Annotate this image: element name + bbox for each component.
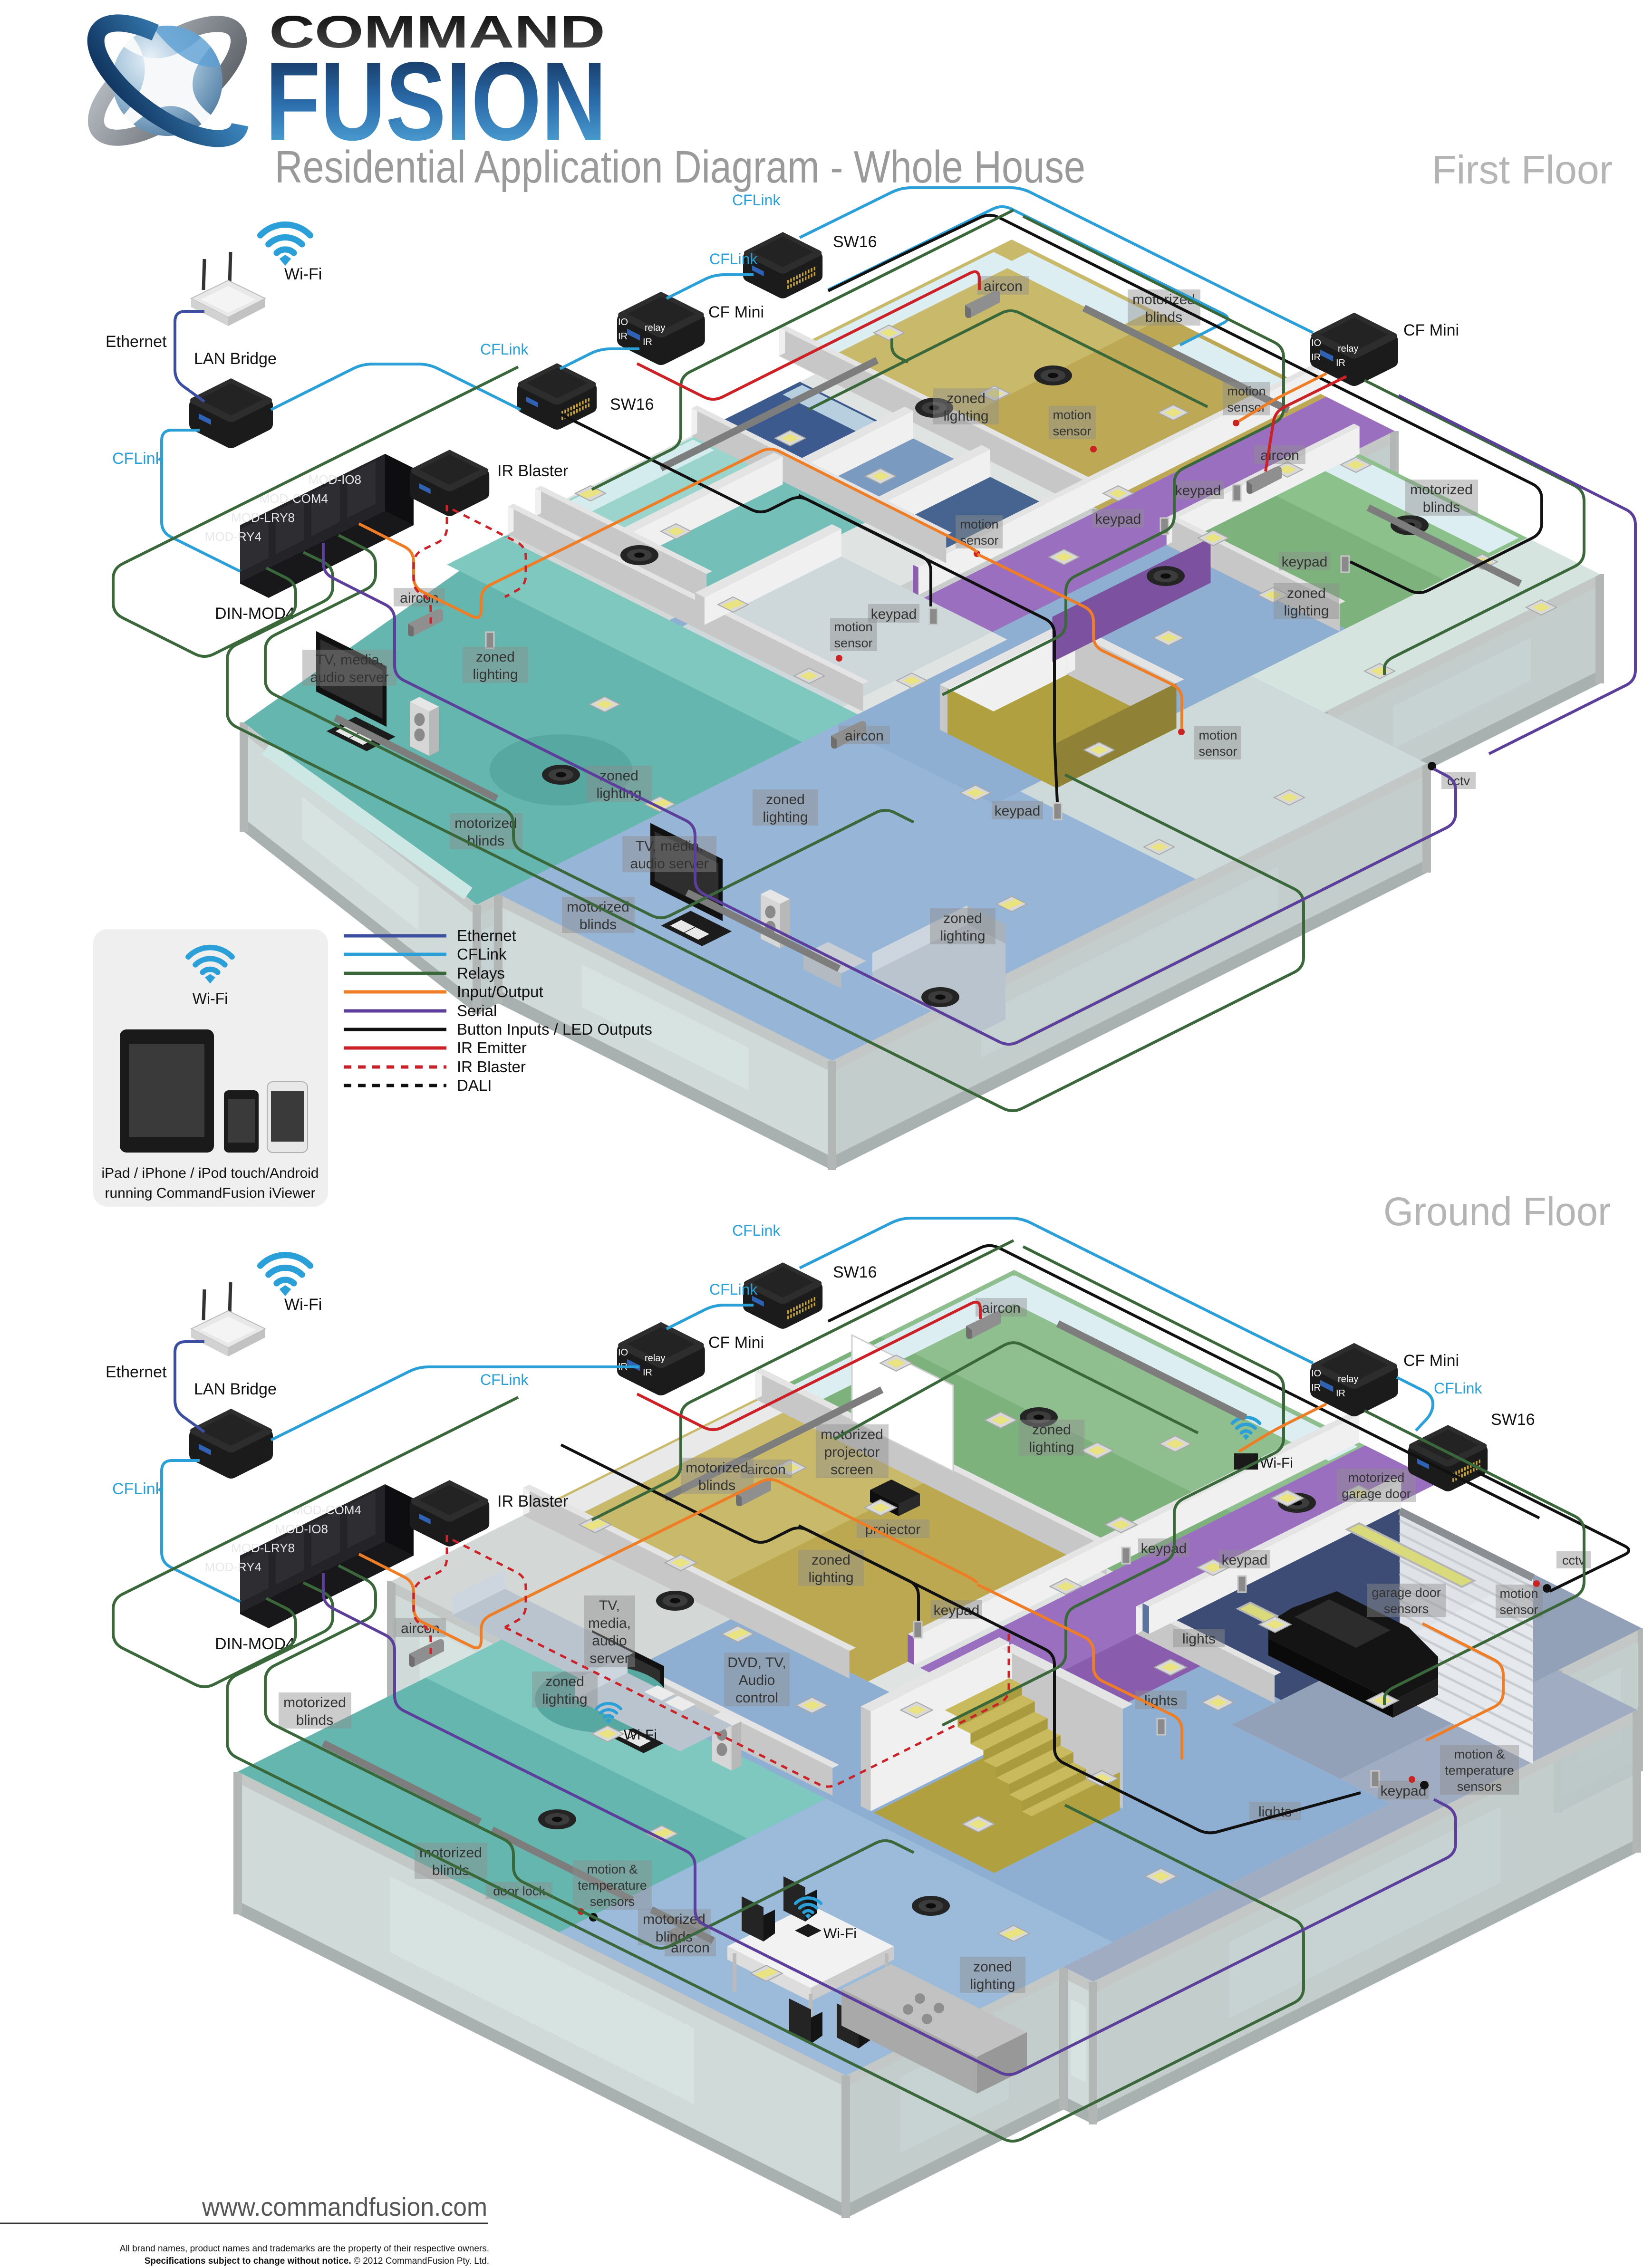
svg-text:motion: motion	[1499, 1586, 1538, 1601]
svg-text:DVD, TV,: DVD, TV,	[727, 1655, 786, 1671]
svg-text:lights: lights	[1182, 1631, 1216, 1647]
svg-text:blinds: blinds	[698, 1478, 735, 1493]
svg-text:MOD-IO8: MOD-IO8	[275, 1522, 328, 1536]
svg-text:CF Mini: CF Mini	[708, 303, 764, 321]
svg-text:TV, media,: TV, media,	[316, 652, 383, 668]
svg-text:CFLink: CFLink	[732, 192, 781, 209]
svg-text:garage door: garage door	[1372, 1586, 1441, 1600]
svg-text:CFLink: CFLink	[457, 945, 507, 963]
svg-text:Relays: Relays	[457, 964, 505, 982]
svg-text:sensor: sensor	[1198, 744, 1237, 759]
svg-text:TV,: TV,	[599, 1598, 620, 1614]
svg-text:CF Mini: CF Mini	[1403, 321, 1459, 339]
svg-text:blinds: blinds	[467, 833, 504, 849]
svg-text:relay: relay	[1338, 344, 1358, 354]
svg-text:CFLink: CFLink	[709, 1281, 758, 1298]
svg-text:IR: IR	[1311, 352, 1321, 363]
svg-text:keypad: keypad	[1381, 1783, 1427, 1799]
svg-text:zoned: zoned	[1287, 586, 1326, 601]
svg-text:audio server: audio server	[630, 856, 708, 872]
svg-text:cctv: cctv	[1447, 774, 1470, 788]
svg-text:keypad: keypad	[1175, 483, 1221, 499]
svg-text:CFLink: CFLink	[1434, 1380, 1482, 1397]
svg-text:CFLink: CFLink	[732, 1222, 781, 1239]
svg-text:zoned: zoned	[476, 649, 515, 665]
svg-text:IO: IO	[1311, 338, 1321, 348]
svg-text:IR: IR	[1311, 1383, 1321, 1393]
svg-text:IO: IO	[618, 1347, 628, 1358]
svg-text:IR: IR	[643, 1367, 652, 1378]
svg-text:All brand names, product names: All brand names, product names and trade…	[120, 2244, 489, 2254]
svg-text:Audio: Audio	[739, 1672, 775, 1688]
svg-text:lighting: lighting	[808, 1570, 853, 1586]
svg-text:DALI: DALI	[457, 1076, 492, 1094]
svg-text:Ethernet: Ethernet	[106, 1363, 167, 1381]
svg-text:motion: motion	[1198, 728, 1237, 742]
svg-text:CFLink: CFLink	[480, 341, 529, 358]
svg-text:aircon: aircon	[982, 1300, 1021, 1316]
svg-text:Button Inputs / LED Outputs: Button Inputs / LED Outputs	[457, 1020, 652, 1038]
svg-text:sensors: sensors	[1384, 1602, 1429, 1616]
svg-text:zoned: zoned	[545, 1674, 584, 1690]
svg-text:LAN Bridge: LAN Bridge	[194, 1380, 277, 1398]
svg-text:relay: relay	[645, 1353, 665, 1364]
svg-text:www.commandfusion.com: www.commandfusion.com	[202, 2193, 487, 2221]
svg-text:motorized: motorized	[454, 816, 517, 831]
svg-text:zoned: zoned	[947, 391, 986, 406]
svg-text:temperature: temperature	[1445, 1763, 1514, 1778]
svg-text:sensor: sensor	[1053, 424, 1091, 438]
svg-text:Serial: Serial	[457, 1002, 497, 1019]
svg-text:IR: IR	[1336, 1388, 1345, 1399]
svg-text:blinds: blinds	[1423, 500, 1460, 515]
svg-text:relay: relay	[1338, 1374, 1358, 1384]
svg-text:MOD-IO8: MOD-IO8	[309, 472, 361, 487]
svg-text:temperature: temperature	[578, 1878, 647, 1893]
svg-text:keypad: keypad	[1095, 511, 1141, 527]
svg-text:Wi-Fi: Wi-Fi	[624, 1727, 657, 1743]
svg-text:First Floor: First Floor	[1432, 147, 1613, 192]
svg-text:Residential Application Diagra: Residential Application Diagram - Whole …	[275, 142, 1085, 192]
svg-text:relay: relay	[645, 323, 665, 333]
svg-text:motorized: motorized	[686, 1460, 748, 1476]
svg-text:motion &: motion &	[587, 1862, 638, 1876]
svg-text:motorized: motorized	[1410, 482, 1473, 498]
svg-text:zoned: zoned	[1032, 1422, 1071, 1438]
svg-text:CFLink: CFLink	[480, 1371, 529, 1388]
svg-text:CFLink: CFLink	[112, 450, 164, 468]
svg-text:SW16: SW16	[1491, 1411, 1535, 1429]
svg-text:IR: IR	[1336, 358, 1345, 368]
svg-text:zoned: zoned	[812, 1552, 850, 1568]
svg-text:MOD-LRY8: MOD-LRY8	[231, 1541, 295, 1555]
svg-text:IR: IR	[643, 337, 652, 347]
svg-text:MOD-LRY8: MOD-LRY8	[231, 510, 295, 525]
svg-text:Wi-Fi: Wi-Fi	[823, 1926, 857, 1941]
svg-text:MOD-RY4: MOD-RY4	[205, 529, 261, 544]
svg-text:blinds: blinds	[1145, 309, 1182, 325]
svg-text:SW16: SW16	[610, 395, 654, 413]
svg-text:Input/Output: Input/Output	[457, 983, 543, 1000]
svg-text:IO: IO	[1311, 1368, 1321, 1379]
svg-text:control: control	[735, 1690, 778, 1706]
svg-text:lighting: lighting	[970, 1977, 1015, 1992]
svg-text:Ground Floor: Ground Floor	[1383, 1189, 1611, 1234]
svg-text:Wi-Fi: Wi-Fi	[284, 265, 322, 283]
svg-text:media,: media,	[588, 1615, 631, 1631]
svg-text:keypad: keypad	[1282, 554, 1328, 570]
svg-text:SW16: SW16	[833, 1263, 877, 1281]
svg-text:SW16: SW16	[833, 233, 877, 251]
svg-text:MOD-RY4: MOD-RY4	[205, 1560, 261, 1574]
svg-text:aircon: aircon	[845, 728, 884, 744]
svg-text:IO: IO	[618, 317, 628, 327]
svg-text:keypad: keypad	[871, 606, 917, 622]
svg-text:aircon: aircon	[984, 279, 1023, 294]
svg-text:lights: lights	[1144, 1693, 1178, 1709]
svg-text:blinds: blinds	[296, 1712, 333, 1728]
svg-text:motion: motion	[960, 517, 998, 531]
svg-text:lighting: lighting	[1029, 1440, 1074, 1455]
svg-text:LAN Bridge: LAN Bridge	[194, 350, 277, 368]
svg-text:garage door: garage door	[1342, 1487, 1411, 1501]
svg-text:blinds: blinds	[580, 917, 617, 932]
svg-text:Wi-Fi: Wi-Fi	[284, 1296, 322, 1314]
svg-text:TV, media,: TV, media,	[636, 838, 703, 854]
svg-text:cctv: cctv	[1562, 1553, 1585, 1567]
svg-text:audio: audio	[592, 1633, 627, 1649]
svg-text:lighting: lighting	[940, 928, 985, 944]
svg-text:lighting: lighting	[473, 667, 518, 682]
svg-text:sensors: sensors	[590, 1894, 635, 1909]
svg-text:lighting: lighting	[943, 408, 988, 424]
svg-text:lighting: lighting	[763, 809, 808, 825]
svg-text:door lock: door lock	[493, 1884, 545, 1898]
svg-text:motion &: motion &	[1454, 1747, 1505, 1761]
svg-text:CFLink: CFLink	[112, 1480, 164, 1498]
svg-text:keypad: keypad	[1222, 1552, 1268, 1568]
svg-text:CFLink: CFLink	[709, 250, 758, 268]
svg-text:IR Blaster: IR Blaster	[497, 1492, 568, 1510]
svg-text:keypad: keypad	[995, 803, 1041, 819]
svg-text:sensor: sensor	[834, 636, 872, 650]
svg-text:Specifications subject to chan: Specifications subject to change without…	[145, 2256, 489, 2266]
svg-text:MOD-COM4: MOD-COM4	[260, 491, 328, 506]
svg-text:server: server	[590, 1651, 629, 1666]
svg-text:motorized: motorized	[283, 1695, 346, 1711]
svg-text:zoned: zoned	[973, 1959, 1012, 1975]
svg-text:IR Blaster: IR Blaster	[497, 462, 568, 480]
svg-text:IR Blaster: IR Blaster	[457, 1058, 526, 1076]
svg-text:motion: motion	[1227, 384, 1266, 398]
svg-text:zoned: zoned	[766, 792, 805, 807]
svg-text:keypad: keypad	[1141, 1541, 1187, 1557]
svg-text:iPad / iPhone / iPod touch/And: iPad / iPhone / iPod touch/Android	[102, 1165, 319, 1181]
svg-text:Wi-Fi: Wi-Fi	[193, 990, 228, 1007]
svg-text:zoned: zoned	[943, 911, 982, 926]
svg-text:sensors: sensors	[1457, 1779, 1502, 1794]
svg-text:CF Mini: CF Mini	[708, 1334, 764, 1352]
svg-text:screen: screen	[831, 1462, 873, 1478]
svg-text:lighting: lighting	[542, 1691, 587, 1707]
svg-text:Ethernet: Ethernet	[457, 927, 516, 944]
svg-text:running CommandFusion iViewer: running CommandFusion iViewer	[105, 1185, 316, 1201]
svg-text:IR: IR	[618, 331, 628, 342]
svg-text:CF Mini: CF Mini	[1403, 1352, 1459, 1370]
svg-text:motion: motion	[834, 620, 872, 634]
svg-text:motion: motion	[1053, 408, 1091, 422]
svg-text:lighting: lighting	[1284, 603, 1329, 619]
svg-text:sensor: sensor	[1499, 1603, 1538, 1617]
svg-text:IR Emitter: IR Emitter	[457, 1039, 527, 1057]
svg-text:Ethernet: Ethernet	[106, 333, 167, 351]
svg-text:projector: projector	[824, 1444, 880, 1460]
svg-text:motorized: motorized	[1348, 1470, 1405, 1485]
svg-text:audio server: audio server	[310, 670, 388, 685]
